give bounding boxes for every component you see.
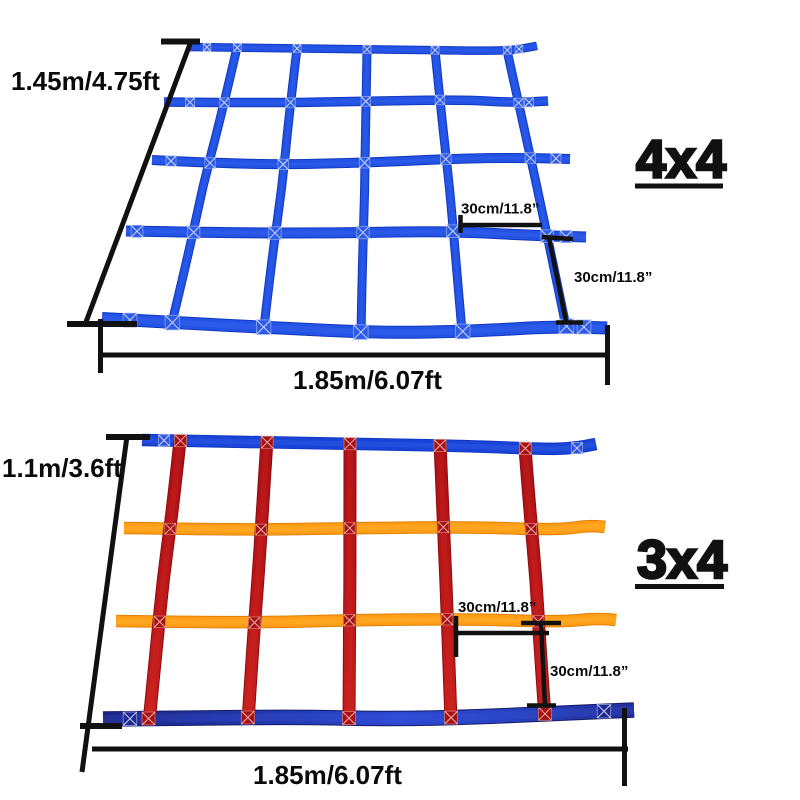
svg-text:30cm/11.8”: 30cm/11.8” — [461, 201, 539, 218]
svg-text:1.45m/4.75ft: 1.45m/4.75ft — [11, 66, 160, 96]
svg-text:30cm/11.8”: 30cm/11.8” — [574, 269, 652, 286]
svg-text:30cm/11.8”: 30cm/11.8” — [458, 599, 536, 616]
svg-text:1.85m/6.07ft: 1.85m/6.07ft — [253, 760, 402, 790]
svg-text:4x4: 4x4 — [636, 130, 726, 190]
svg-text:1.1m/3.6ft: 1.1m/3.6ft — [2, 453, 122, 483]
svg-text:1.85m/6.07ft: 1.85m/6.07ft — [293, 365, 442, 395]
svg-text:30cm/11.8”: 30cm/11.8” — [550, 663, 628, 680]
svg-text:3x4: 3x4 — [637, 530, 727, 590]
